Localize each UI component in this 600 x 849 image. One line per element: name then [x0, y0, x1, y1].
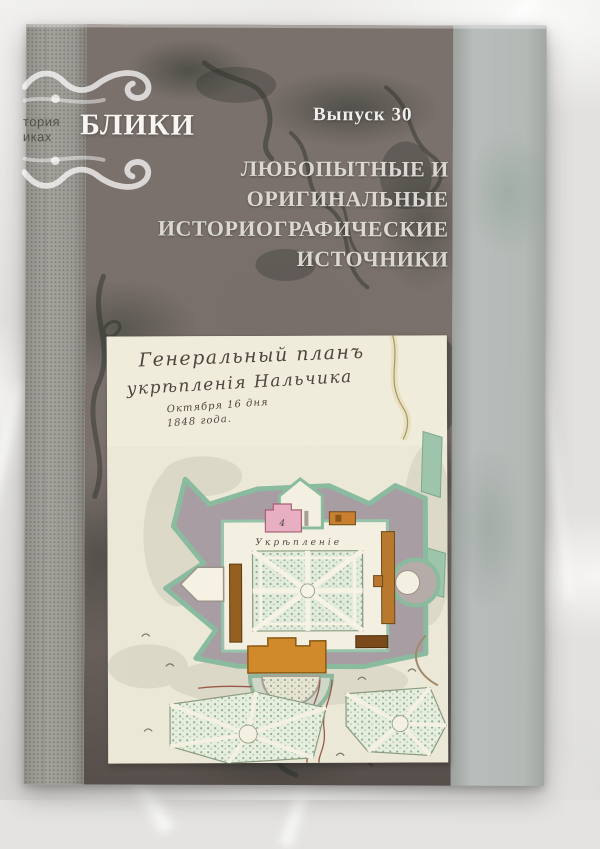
fort-label: Укрѣпленіе — [255, 538, 342, 548]
series-logo: БЛИКИ — [80, 108, 195, 142]
spine-series-line1: тория — [23, 114, 79, 129]
cover-title-line2: ОРИГИНАЛЬНЫЕ — [119, 183, 449, 214]
building-orange-small — [329, 512, 355, 525]
building-east-wing — [374, 576, 383, 587]
garden-square — [253, 551, 363, 631]
garden-pentagon-left — [170, 692, 326, 764]
cover-title: ЛЮБОПЫТНЫЕ И ОРИГИНАЛЬНЫЕ ИСТОРИОГРАФИЧЕ… — [118, 153, 448, 274]
spine-series-text: тория иках — [23, 114, 79, 144]
building-brown-southeast — [356, 636, 388, 648]
map-plate: 4 — [107, 335, 448, 763]
fort-right-bastion — [393, 559, 439, 605]
cover-title-line1: ЛЮБОПЫТНЫЕ И — [119, 153, 449, 184]
fore-edge-strip — [451, 26, 547, 786]
fort-plan-map: 4 — [107, 335, 448, 763]
spine-series-line2: иках — [23, 129, 79, 144]
building-orange-east-barracks — [381, 532, 394, 624]
cover-title-line4: ИСТОЧНИКИ — [118, 243, 448, 274]
scroll-ornament-icon — [22, 56, 168, 113]
book-cover: тория иках БЛИКИ Выпуск 30 ЛЮБОПЫТНЫЕ И … — [24, 24, 547, 786]
building-brown-west-barracks — [230, 564, 242, 642]
cover-title-line3: ИСТОРИОГРАФИЧЕСКИЕ — [119, 213, 449, 244]
book-spine: тория иках — [24, 24, 87, 784]
building-number-label: 4 — [278, 519, 285, 529]
issue-number: Выпуск 30 — [313, 104, 413, 126]
